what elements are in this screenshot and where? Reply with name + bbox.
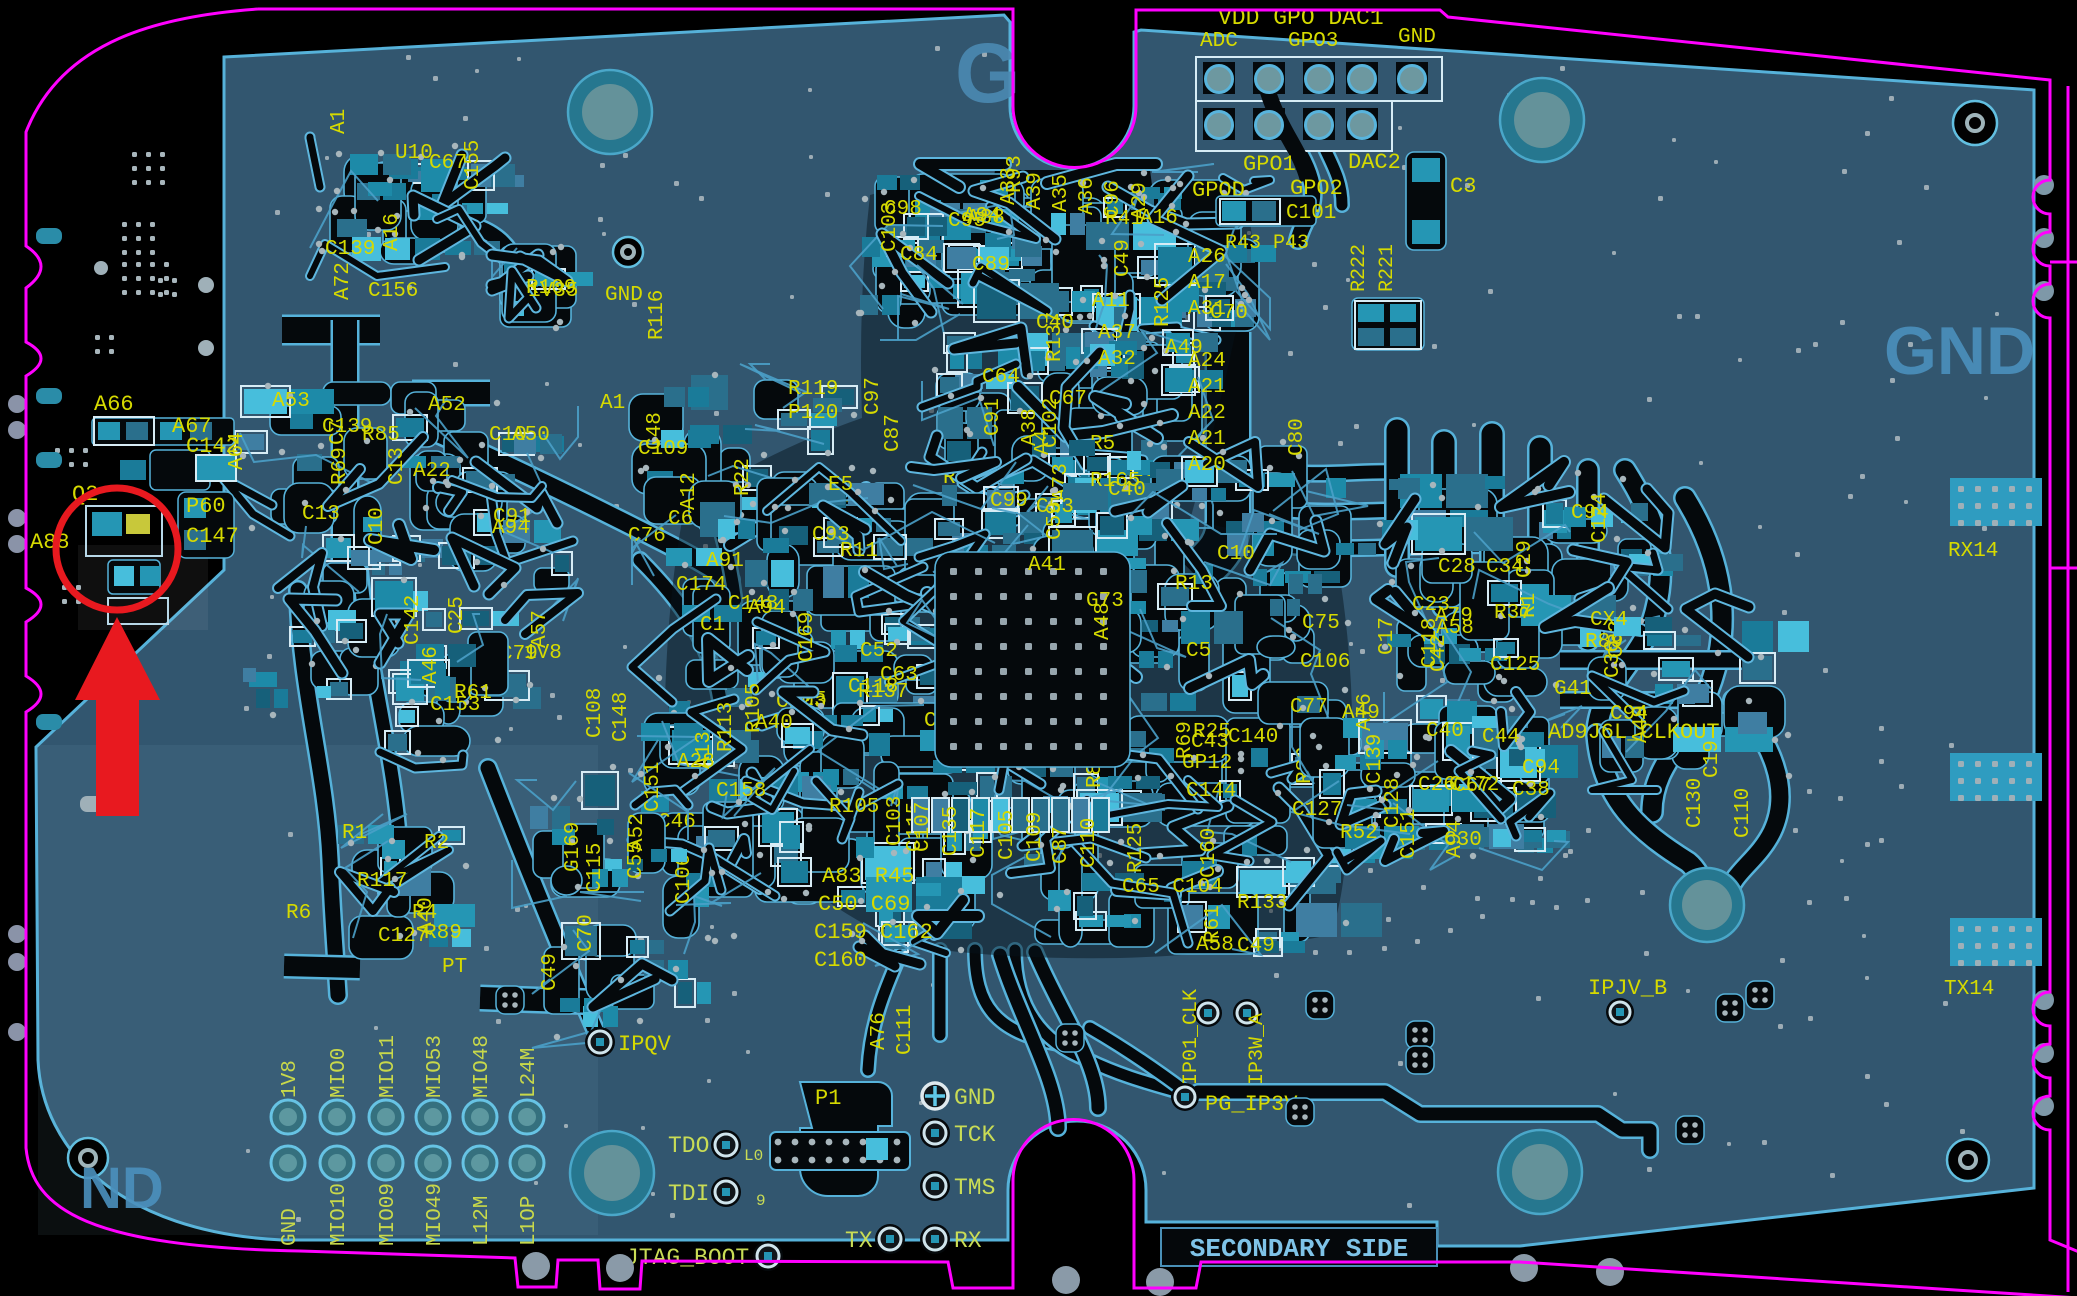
svg-text:G169: G169 [562,822,585,872]
svg-text:A1: A1 [600,392,625,415]
svg-text:U10: U10 [395,142,433,165]
svg-text:AD9J6L_CLKOUT: AD9J6L_CLKOUT [1548,720,1720,745]
svg-text:C110: C110 [1078,818,1101,868]
svg-text:R116: R116 [646,290,669,340]
svg-text:C139: C139 [1364,734,1387,784]
svg-text:C148: C148 [610,692,633,742]
svg-text:R125: R125 [1125,823,1148,873]
svg-text:C110: C110 [1732,788,1755,838]
svg-text:C95: C95 [948,210,986,233]
svg-text:C13: C13 [302,503,340,526]
svg-text:C128: C128 [1382,778,1405,828]
svg-text:C130: C130 [1684,778,1707,828]
svg-text:IPQV: IPQV [618,1032,672,1057]
svg-text:R113: R113 [715,702,738,752]
svg-text:R117: R117 [357,870,407,893]
svg-text:GPO1: GPO1 [1243,152,1296,177]
svg-text:TDI: TDI [668,1181,709,1207]
svg-text:C10: C10 [1217,543,1255,566]
svg-text:L12M: L12M [471,1196,494,1246]
svg-text:ADC: ADC [1200,30,1238,53]
svg-text:C17: C17 [1376,617,1399,655]
svg-text:C97: C97 [862,377,885,415]
svg-text:PT: PT [442,956,467,979]
svg-text:C139: C139 [325,238,375,261]
svg-text:GND: GND [1398,26,1436,49]
svg-text:C117: C117 [968,808,991,858]
svg-text:MIO0: MIO0 [328,1048,351,1098]
svg-text:R11: R11 [840,540,878,563]
svg-text:C144: C144 [1186,780,1236,803]
svg-text:SECONDARY SIDE: SECONDARY SIDE [1190,1234,1408,1264]
svg-text:A21: A21 [1188,376,1226,399]
svg-text:C98: C98 [884,198,922,221]
svg-text:TX14: TX14 [1944,978,1994,1001]
svg-text:R43 P43: R43 P43 [1225,232,1309,255]
svg-text:DAC2: DAC2 [1348,150,1401,175]
svg-text:C23: C23 [1412,594,1450,617]
svg-text:C40: C40 [1426,720,1464,743]
svg-text:C109: C109 [1024,812,1047,862]
svg-text:C87: C87 [882,414,905,452]
svg-text:A16: A16 [381,213,404,251]
svg-text:GND: GND [279,1208,302,1246]
svg-text:C111: C111 [894,1005,917,1055]
svg-text:R2: R2 [424,832,449,855]
svg-text:C155: C155 [462,140,485,190]
svg-text:A50: A50 [512,424,550,447]
svg-text:MIO10: MIO10 [328,1183,351,1246]
svg-text:A53: A53 [272,390,310,413]
svg-text:R37: R37 [1494,602,1532,625]
svg-text:1V35: 1V35 [528,280,578,303]
svg-text:R6: R6 [286,902,311,925]
svg-text:A32: A32 [1098,348,1136,371]
svg-text:C3: C3 [1450,174,1476,199]
svg-text:A22: A22 [1188,402,1226,425]
svg-text:A76: A76 [868,1012,891,1050]
svg-text:A39: A39 [1024,172,1047,210]
svg-text:A35: A35 [1050,174,1073,212]
svg-text:R4: R4 [412,902,437,925]
svg-text:A28: A28 [677,751,715,774]
svg-text:A11: A11 [1092,290,1130,313]
svg-text:A40: A40 [755,712,793,735]
svg-text:P120: P120 [788,402,838,425]
svg-text:IP3W_A: IP3W_A [1246,1013,1269,1085]
svg-text:GND: GND [954,1085,995,1111]
svg-text:TDO: TDO [668,1133,709,1159]
svg-text:R105: R105 [829,796,879,819]
svg-text:R25: R25 [1193,721,1231,744]
svg-text:PG_IP3V: PG_IP3V [1205,1092,1298,1117]
svg-text:C142: C142 [402,595,425,645]
svg-text:C26: C26 [1418,774,1456,797]
svg-text:C96: C96 [1102,180,1125,218]
svg-text:C105: C105 [996,810,1019,860]
svg-text:C87: C87 [1050,826,1073,864]
svg-text:C49: C49 [1237,935,1275,958]
svg-text:C10: C10 [366,507,389,545]
svg-text:A26: A26 [1188,246,1226,269]
svg-text:C89: C89 [972,254,1010,277]
svg-text:A38: A38 [1019,408,1042,446]
svg-text:R22: R22 [732,458,755,496]
svg-text:G41: G41 [1554,678,1592,701]
svg-text:C19: C19 [1701,740,1724,778]
svg-text:MIO48: MIO48 [471,1035,494,1098]
svg-text:A57: A57 [529,610,552,648]
svg-text:L0: L0 [744,1147,763,1165]
svg-text:L24M: L24M [518,1048,541,1098]
svg-text:C107: C107 [912,802,935,852]
svg-text:A91: A91 [706,550,744,573]
svg-text:A33: A33 [998,167,1021,205]
svg-text:C70: C70 [575,914,598,952]
svg-text:C44: C44 [1482,726,1520,749]
svg-text:R69: R69 [329,447,352,485]
svg-text:C139: C139 [322,416,372,439]
svg-text:A29: A29 [1129,182,1152,220]
svg-text:C42: C42 [1428,634,1451,672]
svg-text:GPO3: GPO3 [1288,30,1338,53]
svg-text:C172: C172 [1449,774,1499,797]
svg-text:C159 C162: C159 C162 [814,920,933,945]
svg-text:C77: C77 [1290,696,1328,719]
svg-text:C84: C84 [900,244,938,267]
svg-text:TMS: TMS [954,1175,995,1201]
svg-text:P1: P1 [815,1086,841,1111]
svg-text:R52: R52 [1340,822,1378,845]
svg-text:C153: C153 [430,694,480,717]
svg-text:R125: R125 [1152,277,1175,327]
svg-text:C52: C52 [860,640,898,663]
svg-text:A83 R45: A83 R45 [822,864,914,889]
svg-text:C108: C108 [584,688,607,738]
svg-text:A1: A1 [328,109,351,134]
svg-text:MIO09: MIO09 [377,1183,400,1246]
svg-text:IPJV_B: IPJV_B [1588,976,1667,1001]
svg-text:A20: A20 [1188,454,1226,477]
svg-text:A72: A72 [332,262,355,300]
svg-text:C1: C1 [700,614,725,637]
svg-text:C63: C63 [880,664,918,687]
svg-text:IP01_CLK: IP01_CLK [1180,989,1203,1085]
svg-text:A12: A12 [678,472,701,510]
svg-text:C50 C69: C50 C69 [818,892,910,917]
svg-text:C115: C115 [584,843,607,893]
svg-text:1V8: 1V8 [279,1060,302,1098]
svg-text:C156: C156 [368,280,418,303]
svg-text:C29: C29 [1514,540,1537,578]
svg-text:P60: P60 [186,494,226,519]
svg-text:L1OP: L1OP [518,1196,541,1246]
svg-text:RX: RX [954,1228,982,1254]
svg-text:C106: C106 [1300,651,1350,674]
svg-text:A48: A48 [1092,602,1115,640]
svg-text:A76: A76 [1354,693,1377,731]
svg-text:C99: C99 [990,490,1028,513]
svg-text:E5: E5 [828,474,853,497]
svg-text:C148: C148 [728,593,778,616]
svg-text:C49: C49 [539,953,562,991]
svg-text:MIO53: MIO53 [424,1035,447,1098]
svg-text:C101: C101 [1286,202,1336,225]
svg-text:C102: C102 [1040,398,1063,448]
svg-text:C103: C103 [884,796,907,846]
svg-text:A66: A66 [94,392,134,417]
svg-text:C65 C104: C65 C104 [1122,876,1223,899]
svg-text:C91: C91 [493,506,531,529]
svg-text:RX14: RX14 [1948,540,1998,563]
svg-text:A58: A58 [1196,934,1234,957]
svg-text:C91: C91 [982,398,1005,436]
svg-text:C127: C127 [1292,799,1342,822]
svg-text:A37: A37 [1098,322,1136,345]
svg-text:C49: C49 [1112,239,1135,277]
svg-text:A22: A22 [413,460,451,483]
svg-text:C38: C38 [1512,779,1550,802]
svg-text:GP12: GP12 [1182,752,1232,775]
svg-text:C124: C124 [1589,493,1612,543]
svg-text:C30: C30 [1444,829,1482,852]
svg-text:C6: C6 [668,508,693,531]
svg-text:A52: A52 [626,813,649,851]
svg-text:C160: C160 [814,948,867,973]
svg-text:A64: A64 [226,432,249,470]
svg-text:C125: C125 [1490,654,1540,677]
svg-text:A24: A24 [1188,350,1226,373]
svg-text:C48: C48 [644,412,667,450]
svg-text:TX: TX [845,1228,873,1254]
svg-text:R137: R137 [1044,312,1067,362]
svg-text:MIO11: MIO11 [377,1035,400,1098]
svg-text:C94: C94 [1522,757,1560,780]
svg-text:C64: C64 [982,366,1020,389]
svg-text:A17: A17 [1188,272,1226,295]
svg-text:R1: R1 [342,822,367,845]
svg-text:C160: C160 [1198,828,1221,878]
svg-text:A46: A46 [420,646,443,684]
svg-text:GND: GND [605,284,643,307]
svg-text:C147: C147 [186,524,239,549]
svg-text:G: G [955,26,1020,120]
svg-text:A21: A21 [1188,428,1226,451]
svg-text:CX4: CX4 [1590,609,1628,632]
svg-text:R165: R165 [1090,470,1140,493]
svg-text:C140: C140 [1228,726,1278,749]
svg-text:C169: C169 [796,612,819,662]
svg-text:C25: C25 [446,596,469,634]
svg-text:A88: A88 [30,530,70,555]
svg-text:A52: A52 [428,394,466,417]
svg-text:C5: C5 [1186,640,1211,663]
svg-text:JTAG_BOOT: JTAG_BOOT [625,1245,749,1271]
svg-text:C174: C174 [676,574,726,597]
svg-text:C28: C28 [1438,556,1476,579]
svg-text:C151: C151 [642,762,665,812]
svg-text:9: 9 [756,1192,766,1210]
svg-text:C36: C36 [1602,640,1625,678]
svg-text:A41: A41 [1028,554,1066,577]
svg-text:C158: C158 [716,780,766,803]
svg-text:R13: R13 [1175,573,1213,596]
svg-text:C135: C135 [940,806,963,856]
svg-text:ND: ND [80,1156,164,1221]
svg-text:A31: A31 [1188,298,1226,321]
svg-text:C59: C59 [1044,502,1067,540]
svg-text:TCK: TCK [954,1122,996,1148]
svg-text:R222: R222 [1348,244,1371,292]
svg-text:A36: A36 [1076,177,1099,215]
svg-text:C80: C80 [1286,418,1309,456]
svg-text:R221: R221 [1376,244,1399,292]
svg-text:MIO49: MIO49 [424,1183,447,1246]
svg-text:R133: R133 [1237,892,1287,915]
svg-text:R119: R119 [788,378,838,401]
svg-text:C13: C13 [386,447,409,485]
svg-text:GND: GND [1884,313,2035,389]
svg-text:C75: C75 [1302,612,1340,635]
